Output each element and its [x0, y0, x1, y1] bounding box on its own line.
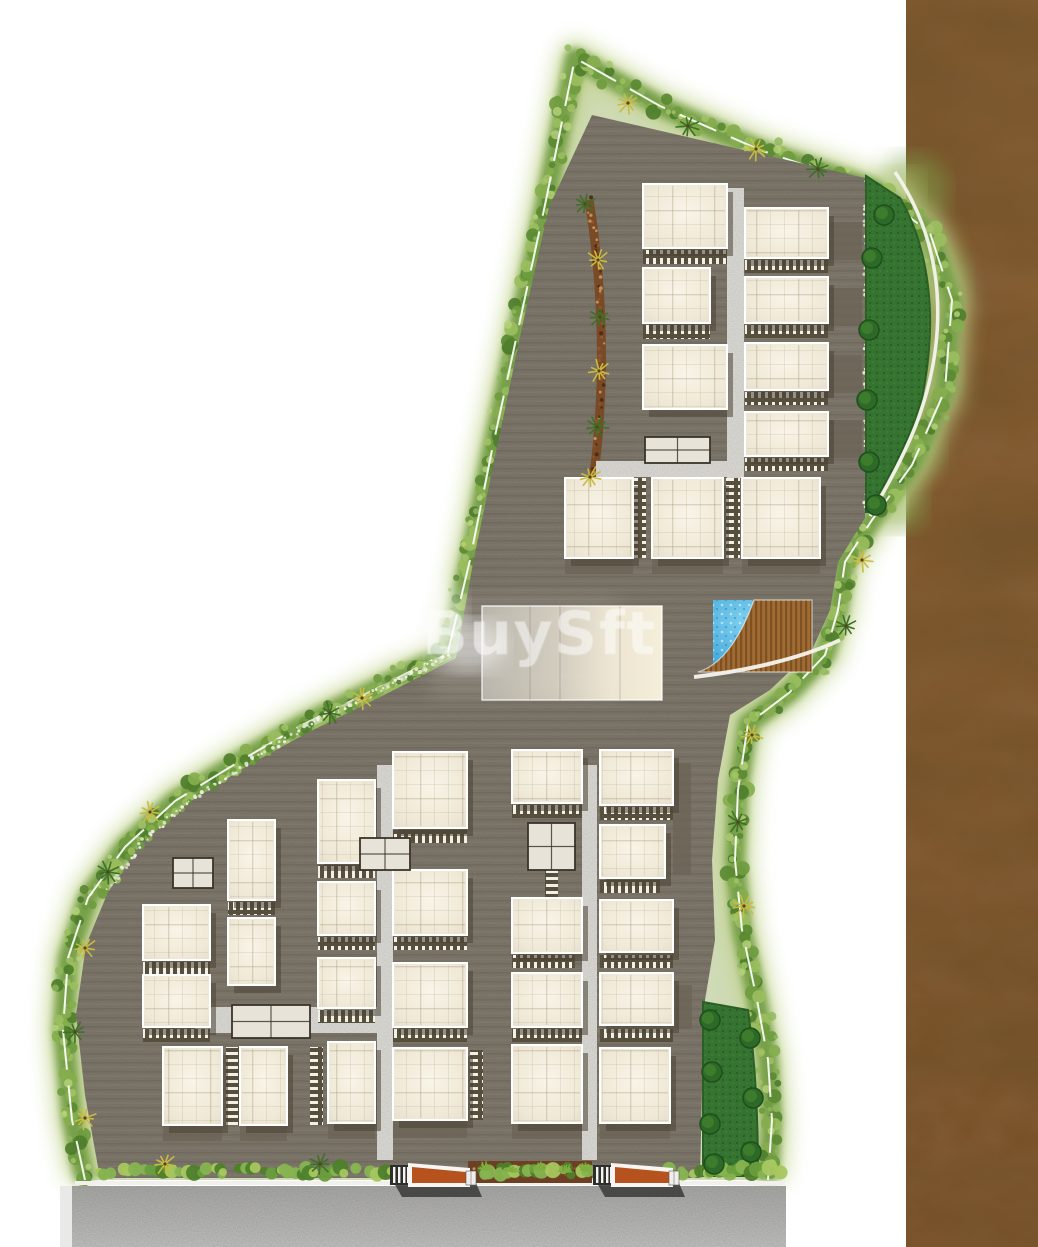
shrub: [64, 929, 71, 936]
flower: [382, 687, 385, 690]
shrub: [484, 438, 491, 445]
flower: [110, 884, 112, 886]
mulch-dot: [599, 391, 602, 394]
shrub: [730, 913, 738, 921]
flower: [244, 762, 248, 766]
shrub: [903, 467, 907, 471]
shrub: [71, 1158, 76, 1163]
shrub: [845, 167, 851, 173]
flower: [200, 790, 204, 794]
shrub: [939, 281, 946, 288]
entrance-road-and-gates: [60, 1159, 788, 1247]
mulch-dot: [592, 226, 595, 229]
shrub: [739, 762, 748, 771]
mulch-dot: [597, 347, 601, 351]
shrub: [85, 1164, 91, 1170]
mulch-dot: [594, 437, 597, 440]
shrub: [774, 1035, 779, 1040]
flower: [392, 682, 395, 685]
shrub: [772, 1104, 780, 1112]
flower: [405, 676, 408, 679]
shrub: [477, 495, 483, 501]
shrub: [768, 1107, 772, 1111]
shrub: [174, 788, 182, 796]
shrub: [759, 1050, 763, 1054]
shrub: [740, 802, 746, 808]
hedge-bush: [774, 1165, 788, 1179]
mulch-dot: [602, 325, 604, 327]
mulch-dot: [596, 301, 599, 304]
shrub: [490, 424, 496, 430]
flower: [260, 752, 263, 755]
flower: [126, 863, 130, 867]
flower: [138, 846, 141, 849]
shrub: [767, 1012, 776, 1021]
flower: [311, 723, 314, 726]
flower: [186, 802, 189, 805]
flower: [344, 707, 347, 710]
flower: [206, 786, 209, 789]
flower: [175, 810, 177, 812]
shrub: [775, 706, 783, 714]
flower: [137, 842, 140, 845]
hedge-bush: [219, 1168, 227, 1176]
shrub: [55, 966, 64, 975]
shrub: [737, 963, 742, 968]
shrub: [620, 78, 626, 84]
shrub: [100, 881, 109, 890]
hedge-bush: [545, 1162, 561, 1178]
flower: [162, 825, 165, 828]
shrub: [941, 261, 948, 268]
flower: [283, 740, 286, 743]
flower: [140, 837, 144, 841]
shrub: [752, 990, 765, 1003]
shrub: [487, 408, 492, 413]
shrub: [944, 329, 949, 334]
flower: [375, 689, 377, 691]
shrub: [596, 79, 607, 90]
shrub: [281, 724, 288, 731]
shrub: [661, 94, 672, 105]
shrub: [615, 85, 624, 94]
shrub: [339, 706, 345, 712]
shrub: [373, 674, 382, 683]
shrub: [788, 684, 794, 690]
shrub: [61, 1111, 67, 1117]
flower: [180, 805, 184, 809]
mulch-dot: [589, 195, 593, 199]
shrub: [63, 938, 68, 943]
mulch-dot: [597, 358, 601, 362]
hedge-bush: [339, 1169, 348, 1178]
shrub: [563, 122, 572, 131]
shrub: [589, 70, 594, 75]
shrub: [775, 1149, 779, 1153]
shrub: [407, 675, 414, 682]
flower: [194, 794, 196, 796]
shrub: [80, 885, 89, 894]
hedge-bush: [250, 1162, 261, 1173]
flower: [380, 690, 382, 692]
flower: [239, 767, 241, 769]
shrub: [606, 61, 613, 68]
shrub: [666, 109, 671, 114]
shrub: [553, 107, 562, 116]
shrub: [138, 821, 146, 829]
flower: [418, 670, 422, 674]
shrub: [744, 718, 751, 725]
flower: [117, 877, 120, 880]
shrub: [888, 504, 897, 513]
shrub: [199, 775, 205, 781]
shrub: [558, 152, 565, 159]
shrub: [390, 665, 396, 671]
shrub: [88, 901, 97, 910]
flower: [125, 866, 128, 869]
shrub: [567, 104, 575, 112]
shrub: [944, 415, 950, 421]
shrub: [738, 730, 743, 735]
shrub: [129, 831, 136, 838]
entrance-gate: [390, 1163, 482, 1197]
flower: [218, 781, 221, 784]
shrub: [915, 224, 921, 230]
flower: [163, 821, 167, 825]
shrub: [954, 361, 958, 365]
flower: [225, 777, 228, 780]
flower: [387, 685, 390, 688]
hedge-bush: [200, 1162, 213, 1175]
shrub: [461, 542, 466, 547]
mulch-dot: [598, 415, 601, 418]
flower: [394, 679, 397, 682]
mulch-dot: [600, 292, 603, 295]
shrub: [502, 355, 509, 362]
shrub: [939, 334, 946, 341]
mulch-dot: [587, 212, 589, 214]
shrub: [128, 847, 136, 855]
flower: [290, 733, 293, 736]
hedge-bush: [350, 1163, 361, 1174]
shrub: [254, 756, 260, 762]
flower: [166, 816, 169, 819]
shrub: [774, 137, 783, 146]
shrub: [69, 1001, 77, 1009]
shrub: [70, 982, 78, 990]
shrub: [749, 975, 761, 987]
watermark-text: BuySft: [422, 599, 657, 669]
mulch-dot: [598, 403, 601, 406]
mulch-dot: [602, 383, 606, 387]
flower: [120, 866, 123, 869]
shrub: [77, 896, 84, 903]
shrub: [564, 44, 571, 51]
flower: [214, 783, 217, 786]
flower: [250, 756, 254, 760]
flower: [284, 737, 286, 739]
flower: [278, 740, 281, 743]
shrub: [560, 73, 567, 80]
flower: [134, 854, 137, 857]
shrub: [736, 861, 750, 875]
shrub: [773, 145, 781, 153]
shrub: [541, 178, 548, 185]
shrub: [672, 110, 676, 114]
mulch-dot: [600, 406, 603, 409]
site-plan-stage: BuySft: [0, 0, 1038, 1247]
mulch-dot: [599, 275, 603, 279]
shrub: [61, 1008, 72, 1019]
shrub: [774, 1080, 781, 1087]
shrub: [73, 1135, 88, 1150]
mulch-dot: [600, 336, 603, 339]
flower: [235, 772, 238, 775]
shrub: [501, 367, 508, 374]
shrub: [462, 554, 469, 561]
flower: [317, 718, 320, 721]
flower: [398, 677, 401, 680]
road-edge-strip: [60, 1186, 72, 1247]
shrub: [757, 1080, 762, 1085]
flower: [371, 689, 374, 692]
flower: [410, 671, 414, 675]
shrub: [834, 581, 842, 589]
flower: [349, 703, 353, 707]
flower: [208, 788, 210, 790]
shrub: [945, 381, 953, 389]
shrub: [813, 669, 819, 675]
shrub: [937, 350, 945, 358]
shrub: [951, 319, 965, 333]
mulch-dot: [599, 270, 602, 273]
shrub: [76, 956, 81, 961]
flower: [296, 733, 298, 735]
shrub: [840, 604, 848, 612]
flower: [159, 826, 161, 828]
shrub: [734, 878, 739, 883]
shrub: [345, 689, 354, 698]
shrub: [732, 772, 739, 779]
shrub: [639, 102, 643, 106]
shrub: [57, 1088, 65, 1096]
shrub: [931, 423, 938, 430]
shrub: [469, 520, 474, 525]
shrub: [52, 985, 59, 992]
shrub: [759, 1108, 765, 1114]
mulch-dot: [564, 1174, 566, 1176]
flower: [305, 724, 308, 727]
flower: [297, 729, 300, 732]
shrub: [66, 956, 74, 964]
mulch-dot: [599, 286, 603, 290]
shrub: [82, 904, 88, 910]
mulch-dot: [589, 214, 592, 217]
mulch-dot: [596, 238, 599, 241]
flower: [231, 772, 235, 776]
flower: [313, 720, 315, 722]
mulch-dot: [600, 398, 604, 402]
shrub: [701, 115, 709, 123]
shrub: [52, 1025, 58, 1031]
flower: [415, 667, 419, 671]
flower: [151, 830, 155, 834]
shrub: [764, 1100, 772, 1108]
shrub: [72, 907, 80, 915]
flower: [257, 754, 259, 756]
hedge-bush: [105, 1167, 117, 1179]
shrub: [914, 435, 919, 440]
shrub: [851, 574, 858, 581]
shrub: [825, 629, 831, 635]
shrub: [772, 1135, 783, 1146]
pebble: [863, 213, 866, 216]
shrub: [188, 772, 201, 785]
mulch-dot: [595, 452, 599, 456]
shrub: [59, 1067, 72, 1080]
mulch-dot: [594, 445, 596, 447]
shrub: [926, 225, 934, 233]
mulch-dot: [597, 244, 600, 247]
flower: [401, 678, 404, 681]
flower: [147, 839, 149, 841]
shrub: [769, 1045, 781, 1057]
shrub: [504, 321, 512, 329]
shrub: [529, 220, 533, 224]
flower: [150, 834, 153, 837]
master-plan-svg: BuySft: [0, 0, 1038, 1247]
shrub: [512, 309, 517, 314]
flower: [170, 814, 173, 817]
entrance-gate: [593, 1163, 685, 1197]
shrub: [562, 115, 569, 122]
shrub: [397, 661, 406, 670]
flower: [106, 888, 108, 890]
shrub: [738, 969, 745, 976]
shrub: [761, 1116, 775, 1130]
shrub: [473, 508, 479, 514]
shrub: [63, 965, 73, 975]
shrub: [825, 670, 830, 675]
shrub: [736, 741, 743, 748]
flower: [173, 814, 176, 817]
shrub: [396, 680, 401, 685]
shrub: [533, 214, 538, 219]
mulch-dot: [598, 354, 602, 358]
shrub: [840, 590, 852, 602]
shrub: [958, 292, 962, 296]
mulch-dot: [588, 220, 591, 223]
mulch-dot: [595, 229, 598, 232]
shrub: [107, 855, 112, 860]
shrub: [497, 376, 501, 380]
mulch-dot: [473, 1167, 476, 1170]
flower: [188, 801, 190, 803]
shrub: [954, 311, 960, 317]
shrub: [738, 882, 742, 886]
shrub: [554, 96, 560, 102]
flower: [277, 745, 281, 749]
shrub: [67, 1136, 72, 1141]
shrub: [549, 162, 555, 168]
mulch-dot: [603, 342, 605, 344]
shrub: [453, 575, 459, 581]
flower: [271, 746, 274, 749]
shrub: [845, 582, 854, 591]
flower: [179, 809, 181, 811]
flower: [198, 794, 201, 797]
mulch-dot: [598, 298, 601, 301]
shrub: [718, 123, 726, 131]
flower: [263, 751, 266, 754]
mulch-dot: [599, 331, 603, 335]
mulch-dot: [592, 456, 594, 458]
